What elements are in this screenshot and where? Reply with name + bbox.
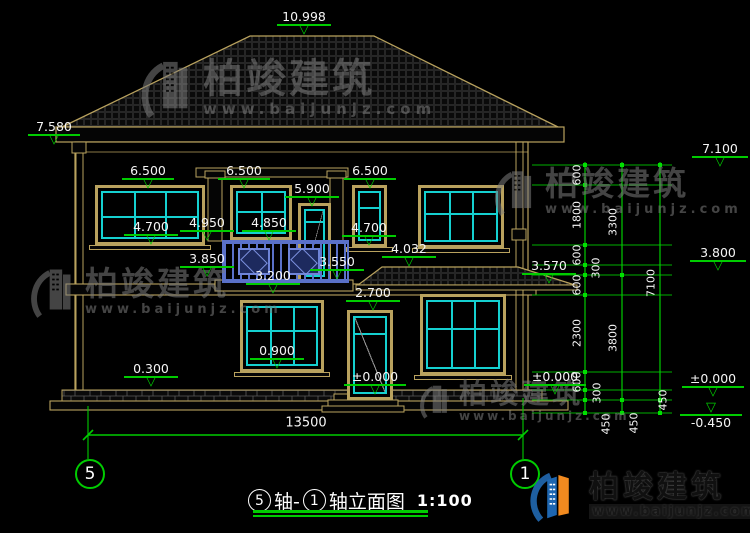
elevation-marker-left-eave: 7.580 <box>28 120 80 146</box>
elevation-marker-w5-sill: 0.900 <box>250 344 304 370</box>
elevation-marker-porch-roof: 4.032 <box>382 242 436 268</box>
brand-name: 柏竣建筑 <box>589 471 750 504</box>
elevation-triangle-icon <box>272 359 282 370</box>
elevation-triangle-icon <box>715 157 725 168</box>
elevation-marker-w2-sill: 4.850 <box>242 216 296 242</box>
right-downspout-funnel <box>512 229 526 240</box>
elevation-triangle-icon <box>143 179 153 190</box>
elevation-marker-entry-zero: ±0.000 <box>344 370 406 396</box>
elevation-marker-3800: 3.800 <box>690 246 746 272</box>
elevation-triangle-icon <box>365 179 375 190</box>
watermark: 柏竣建筑 www.baijunjz.com <box>28 260 282 324</box>
elevation-triangle-icon <box>550 385 560 396</box>
title-axis-from: 5 <box>248 489 271 512</box>
elevation-triangle-icon <box>268 284 278 295</box>
dim-label: 450 <box>628 413 641 434</box>
title-underline <box>253 515 428 517</box>
dim-label: 2300 <box>571 319 584 347</box>
elevation-marker-door1-top: 2.700 <box>346 286 400 312</box>
elevation-triangle-icon <box>307 197 317 208</box>
brand-logo-icon <box>492 162 538 222</box>
brand-logo: 柏竣建筑 www.baijunjz.com <box>528 464 750 526</box>
dim-label: 7100 <box>645 269 658 297</box>
elevation-triangle-icon <box>332 270 342 281</box>
title-underline <box>253 510 428 513</box>
elevation-marker-7100: 7.100 <box>692 142 748 168</box>
window-glass <box>424 191 498 242</box>
dim-label: 300 <box>590 258 603 279</box>
elevation-marker-right-zero: ±0.000 <box>682 372 744 398</box>
elevation-marker-w1-top: 6.500 <box>122 164 174 190</box>
elevation-marker-footing: -0.450 <box>680 404 742 430</box>
elevation-marker-balcony-slab: 3.850 <box>180 252 234 278</box>
title-scale: 1:100 <box>417 491 473 510</box>
elevation-triangle-icon <box>368 301 378 312</box>
brand-logo-icon <box>418 378 452 424</box>
elevation-marker-w1-sill: 4.700 <box>124 220 178 246</box>
step-2 <box>328 400 398 406</box>
window-sill <box>234 372 330 377</box>
elevation-triangle-icon <box>544 274 554 285</box>
dim-label: 600 <box>571 165 584 186</box>
elevation-triangle-icon <box>713 261 723 272</box>
elevation-triangle-icon <box>299 25 309 36</box>
watermark-url: www.baijunjz.com <box>85 302 282 317</box>
axis-number: 5 <box>85 464 96 484</box>
elevation-marker-plinth: 0.300 <box>124 362 178 388</box>
brand-logo-icon <box>28 260 78 324</box>
elevation-marker-balcony-door: 5.900 <box>285 182 339 208</box>
elevation-triangle-icon <box>239 179 249 190</box>
elevation-value: -0.450 <box>691 416 731 430</box>
dim-label: 1800 <box>571 201 584 229</box>
elevation-triangle-icon <box>364 236 374 247</box>
dim-label: 3800 <box>607 324 620 352</box>
dim-label: 3300 <box>607 208 620 236</box>
elevation-marker-w2-top: 6.500 <box>218 164 270 190</box>
watermark-brand: 柏竣建筑 <box>203 58 436 100</box>
axis-bubble-5: 5 <box>75 459 105 489</box>
elevation-triangle-icon <box>708 387 718 398</box>
elevation-marker-porch-eave: 3.570 <box>522 259 576 285</box>
dim-label: 450 <box>657 390 670 411</box>
elevation-marker-w3-top: 6.500 <box>344 164 396 190</box>
elevation-triangle-icon <box>202 267 212 278</box>
elevation-marker-balcony-slab-right: 3.550 <box>310 255 364 281</box>
elevation-marker-floor2: 3.200 <box>246 269 300 295</box>
brand-logo-icon <box>528 464 584 526</box>
title-axis-to: 1 <box>303 489 326 512</box>
elevation-triangle-icon <box>264 231 274 242</box>
brand-url: www.baijunjz.com <box>589 504 750 519</box>
window-glass <box>426 300 500 369</box>
elevation-triangle-icon <box>404 257 414 268</box>
dim-label: 300 <box>591 383 604 404</box>
brand-logo-icon <box>138 52 196 124</box>
elevation-marker-right-zero-inner: ±0.000 <box>524 370 586 396</box>
elevation-triangle-icon <box>202 231 212 242</box>
watermark: 柏竣建筑 www.baijunjz.com <box>138 52 436 124</box>
elevation-marker-ridge: 10.998 <box>277 10 331 36</box>
elevation-marker-railing-top: 4.950 <box>180 216 234 242</box>
elevation-triangle-icon <box>146 377 156 388</box>
elevation-triangle-icon <box>146 235 156 246</box>
elevation-triangle-icon <box>370 385 380 396</box>
step-3 <box>322 406 404 412</box>
elevation-triangle-icon <box>49 135 59 146</box>
watermark-url: www.baijunjz.com <box>203 100 436 118</box>
eave-fascia <box>56 127 564 142</box>
elevation-triangle-icon <box>706 403 716 414</box>
elevation-drawing-canvas: 柏竣建筑 www.baijunjz.com 柏竣建筑 www.baijunjz.… <box>0 0 750 533</box>
total-width-label: 13500 <box>285 416 326 431</box>
window-1f-right <box>420 294 506 375</box>
dim-label: 450 <box>600 414 613 435</box>
